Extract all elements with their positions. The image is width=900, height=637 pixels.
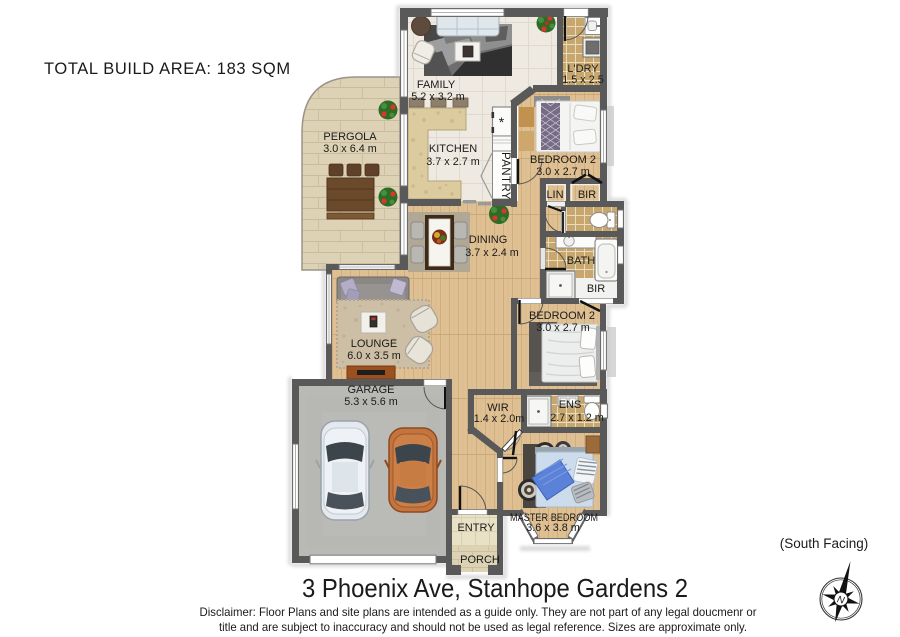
- svg-text:GARAGE: GARAGE: [347, 384, 394, 396]
- svg-text:5.2 x 3.2 m: 5.2 x 3.2 m: [411, 91, 464, 103]
- svg-text:LIN: LIN: [546, 189, 563, 201]
- svg-text:BEDROOM 2: BEDROOM 2: [529, 310, 595, 322]
- svg-text:DINING: DINING: [469, 234, 508, 246]
- svg-text:PERGOLA: PERGOLA: [323, 131, 377, 143]
- svg-text:*: *: [499, 114, 505, 130]
- svg-text:BIR: BIR: [587, 283, 605, 295]
- svg-text:KITCHEN: KITCHEN: [429, 143, 477, 155]
- svg-text:Disclaimer: Floor Plans and si: Disclaimer: Floor Plans and site plans a…: [200, 605, 757, 619]
- svg-text:BIR: BIR: [578, 189, 596, 201]
- svg-text:1.5 x 2.5: 1.5 x 2.5: [562, 74, 603, 86]
- svg-text:ENTRY: ENTRY: [457, 522, 495, 534]
- svg-text:TOTAL BUILD AREA: 183 SQM: TOTAL BUILD AREA: 183 SQM: [44, 60, 291, 78]
- svg-text:6.0 x 3.5 m: 6.0 x 3.5 m: [347, 350, 400, 362]
- svg-text:3 Phoenix Ave, Stanhope Garden: 3 Phoenix Ave, Stanhope Gardens 2: [302, 573, 688, 603]
- svg-text:BEDROOM 2: BEDROOM 2: [530, 154, 596, 166]
- svg-text:FAMILY: FAMILY: [417, 79, 456, 91]
- svg-text:title and are subject to inacc: title and are subject to inaccuracy and …: [219, 620, 747, 634]
- svg-text:3.7 x 2.7 m: 3.7 x 2.7 m: [426, 156, 479, 168]
- svg-text:ENS: ENS: [559, 399, 582, 411]
- svg-text:3.0 x 6.4 m: 3.0 x 6.4 m: [323, 143, 376, 155]
- svg-text:1.4 x 2.0m: 1.4 x 2.0m: [474, 413, 524, 425]
- svg-text:5.3 x 5.6 m: 5.3 x 5.6 m: [344, 396, 397, 408]
- svg-text:3.7 x 2.4 m: 3.7 x 2.4 m: [465, 247, 518, 259]
- svg-text:3.0 x 2.7 m: 3.0 x 2.7 m: [536, 322, 589, 334]
- svg-text:3.6 x 3.8 m: 3.6 x 3.8 m: [526, 522, 579, 534]
- svg-text:PORCH: PORCH: [460, 554, 500, 566]
- svg-text:2.7 x 1.2 m: 2.7 x 1.2 m: [550, 412, 603, 424]
- svg-text:LOUNGE: LOUNGE: [351, 338, 397, 350]
- svg-text:(South Facing): (South Facing): [780, 536, 869, 551]
- svg-text:PANTRY: PANTRY: [499, 152, 511, 200]
- svg-text:3.0 x 2.7 m: 3.0 x 2.7 m: [536, 166, 589, 178]
- svg-text:BATH: BATH: [567, 255, 596, 267]
